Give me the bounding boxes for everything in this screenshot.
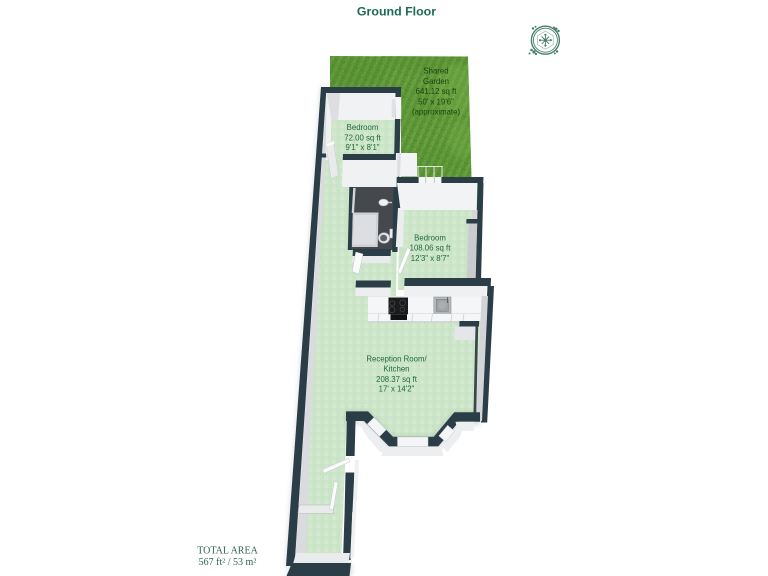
svg-text:Shared: Shared: [423, 67, 448, 76]
svg-text:208.37 sq ft: 208.37 sq ft: [376, 375, 418, 384]
svg-text:Bedroom: Bedroom: [347, 123, 379, 132]
svg-text:17' x 14'2": 17' x 14'2": [379, 385, 415, 394]
svg-text:Reception Room/: Reception Room/: [366, 354, 427, 363]
svg-text:9'1" x 8'1": 9'1" x 8'1": [345, 143, 379, 152]
svg-text:567 ft² / 53 m²: 567 ft² / 53 m²: [199, 557, 257, 568]
svg-text:Bedroom: Bedroom: [414, 233, 446, 242]
svg-text:108.06 sq ft: 108.06 sq ft: [410, 244, 452, 253]
svg-text:TOTAL AREA: TOTAL AREA: [197, 546, 258, 557]
svg-text:72.00 sq ft: 72.00 sq ft: [344, 133, 381, 142]
svg-text:50' x 19'6": 50' x 19'6": [418, 97, 454, 106]
svg-text:Garden: Garden: [423, 77, 449, 86]
svg-text:Ground Floor: Ground Floor: [357, 4, 436, 18]
svg-text:12'3" x 8'7": 12'3" x 8'7": [411, 254, 450, 263]
svg-text:Kitchen: Kitchen: [383, 365, 409, 374]
svg-text:641.12 sq ft: 641.12 sq ft: [416, 87, 458, 96]
svg-text:(approximate): (approximate): [412, 108, 461, 117]
